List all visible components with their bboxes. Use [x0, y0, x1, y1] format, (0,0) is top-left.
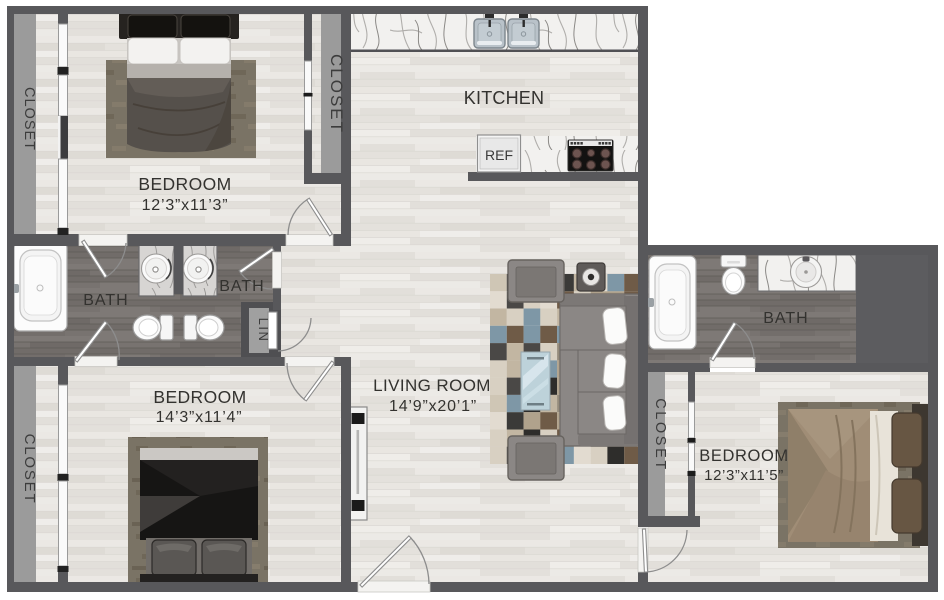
svg-text:CLOSET: CLOSET: [327, 54, 346, 134]
svg-text:12’3”x11’3”: 12’3”x11’3”: [142, 197, 229, 214]
svg-text:LIVING ROOM: LIVING ROOM: [373, 376, 491, 395]
svg-text:BEDROOM: BEDROOM: [138, 174, 231, 194]
svg-text:CLOSET: CLOSET: [21, 87, 37, 151]
svg-text:REF: REF: [485, 147, 513, 163]
svg-text:14’9”x20’1”: 14’9”x20’1”: [389, 398, 477, 415]
svg-text:KITCHEN: KITCHEN: [464, 88, 544, 108]
svg-text:LIN: LIN: [256, 318, 271, 343]
svg-text:14’3”x11’4”: 14’3”x11’4”: [156, 409, 243, 426]
svg-text:BATH: BATH: [83, 292, 128, 309]
svg-text:BEDROOM: BEDROOM: [699, 447, 788, 465]
svg-text:BATH: BATH: [763, 310, 808, 327]
svg-text:BEDROOM: BEDROOM: [153, 387, 246, 407]
svg-text:CLOSET: CLOSET: [652, 398, 668, 472]
svg-text:CLOSET: CLOSET: [21, 434, 38, 505]
svg-text:BATH: BATH: [219, 278, 264, 295]
svg-text:12’3”x11’5”: 12’3”x11’5”: [704, 467, 784, 484]
